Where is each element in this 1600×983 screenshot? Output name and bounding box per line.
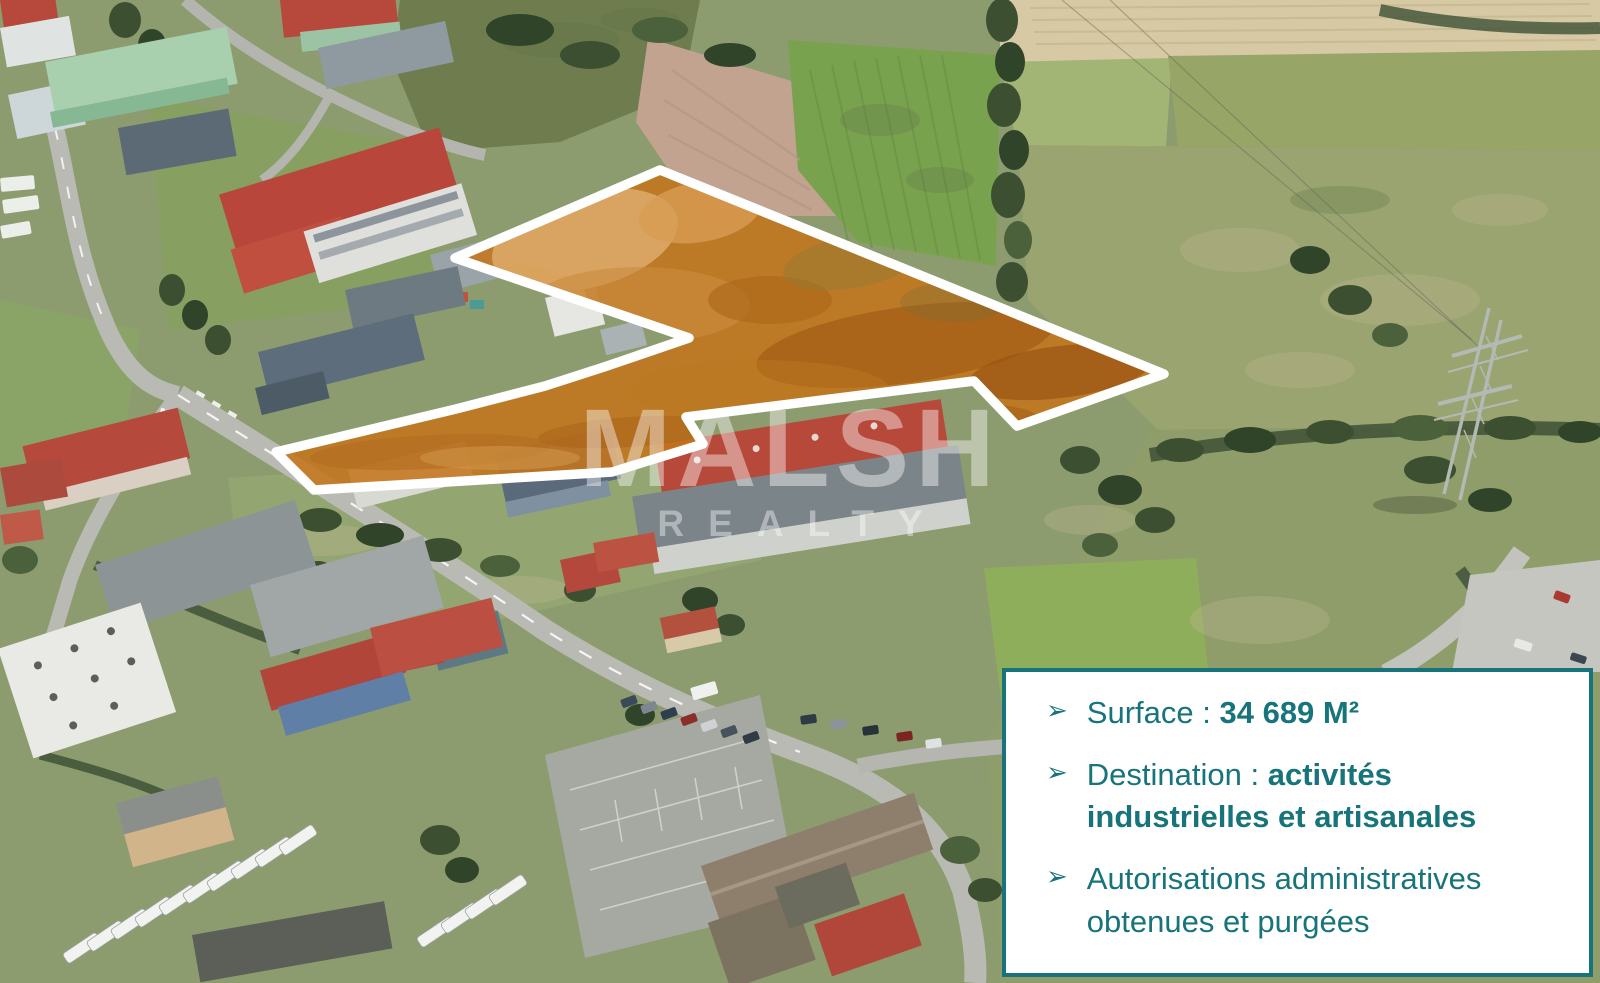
info-item-authorizations: ➢ Autorisations administratives obtenues… — [1046, 858, 1565, 942]
info-item-surface: ➢ Surface : 34 689 M² — [1046, 692, 1565, 734]
aerial-marketing-image: MALSH REALTY ➢ Surface : 34 689 M² ➢ Des… — [0, 0, 1600, 983]
arrow-bullet-icon: ➢ — [1046, 861, 1068, 942]
surface-text: Surface : 34 689 M² — [1087, 692, 1557, 734]
authorizations-text: Autorisations administratives obtenues e… — [1087, 858, 1557, 942]
destination-text: Destination : activités industrielles et… — [1087, 754, 1557, 838]
arrow-bullet-icon: ➢ — [1046, 695, 1068, 734]
property-info-box: ➢ Surface : 34 689 M² ➢ Destination : ac… — [1002, 668, 1593, 977]
arrow-bullet-icon: ➢ — [1046, 757, 1068, 838]
info-item-destination: ➢ Destination : activités industrielles … — [1046, 754, 1565, 838]
